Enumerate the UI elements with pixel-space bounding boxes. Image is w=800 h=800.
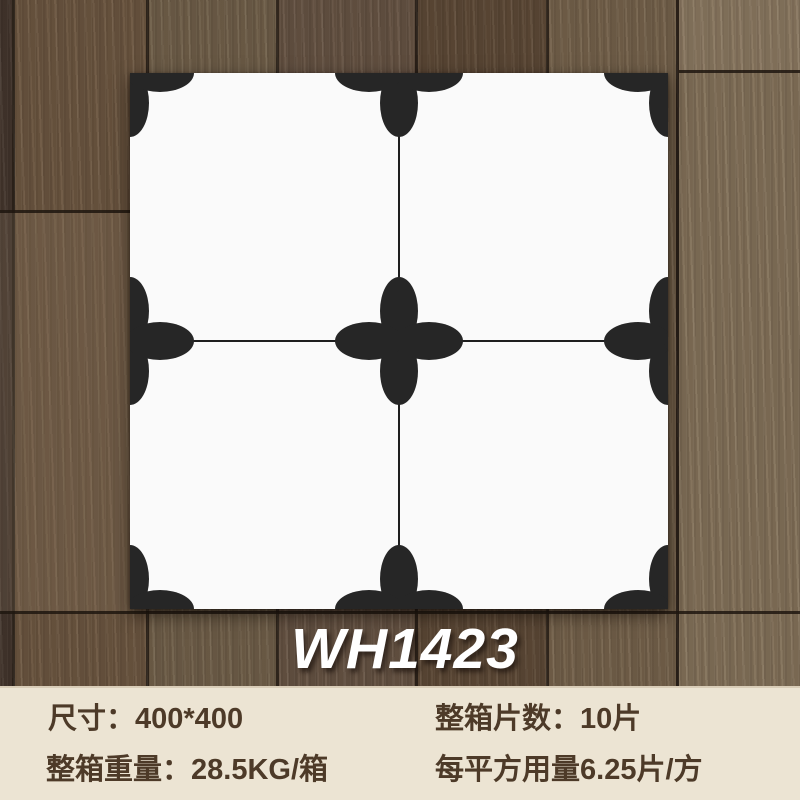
wood-plank-shade — [0, 213, 149, 611]
product-model-number: WH1423 — [0, 619, 800, 679]
spec-usage-value: 6.25片/方 — [580, 754, 703, 786]
spec-size-value: 400*400 — [135, 703, 243, 735]
spec-pieces-per-box: 整箱片数：10片 — [435, 701, 641, 737]
spec-weight-label: 整箱重量： — [46, 754, 191, 786]
spec-box-weight: 整箱重量：28.5KG/箱 — [46, 752, 328, 788]
wood-plank-shade — [679, 0, 800, 70]
wood-plank-seam — [0, 611, 800, 614]
spec-pieces-value: 10片 — [580, 703, 641, 735]
tile-pattern-graphic — [130, 73, 668, 609]
spec-weight-value: 28.5KG/箱 — [191, 754, 328, 786]
spec-size: 尺寸：400*400 — [48, 701, 243, 737]
wood-plank-seam — [679, 70, 800, 73]
spec-size-label: 尺寸： — [48, 703, 135, 735]
product-image: WH1423 尺寸：400*400 整箱片数：10片 整箱重量：28.5KG/箱… — [0, 0, 800, 800]
tile-product-photo — [130, 73, 668, 609]
spec-usage-label: 每平方用量 — [435, 754, 580, 786]
spec-pieces-label: 整箱片数： — [435, 703, 580, 735]
spec-panel: 尺寸：400*400 整箱片数：10片 整箱重量：28.5KG/箱 每平方用量6… — [0, 686, 800, 800]
spec-usage-per-sqm: 每平方用量6.25片/方 — [435, 752, 703, 788]
